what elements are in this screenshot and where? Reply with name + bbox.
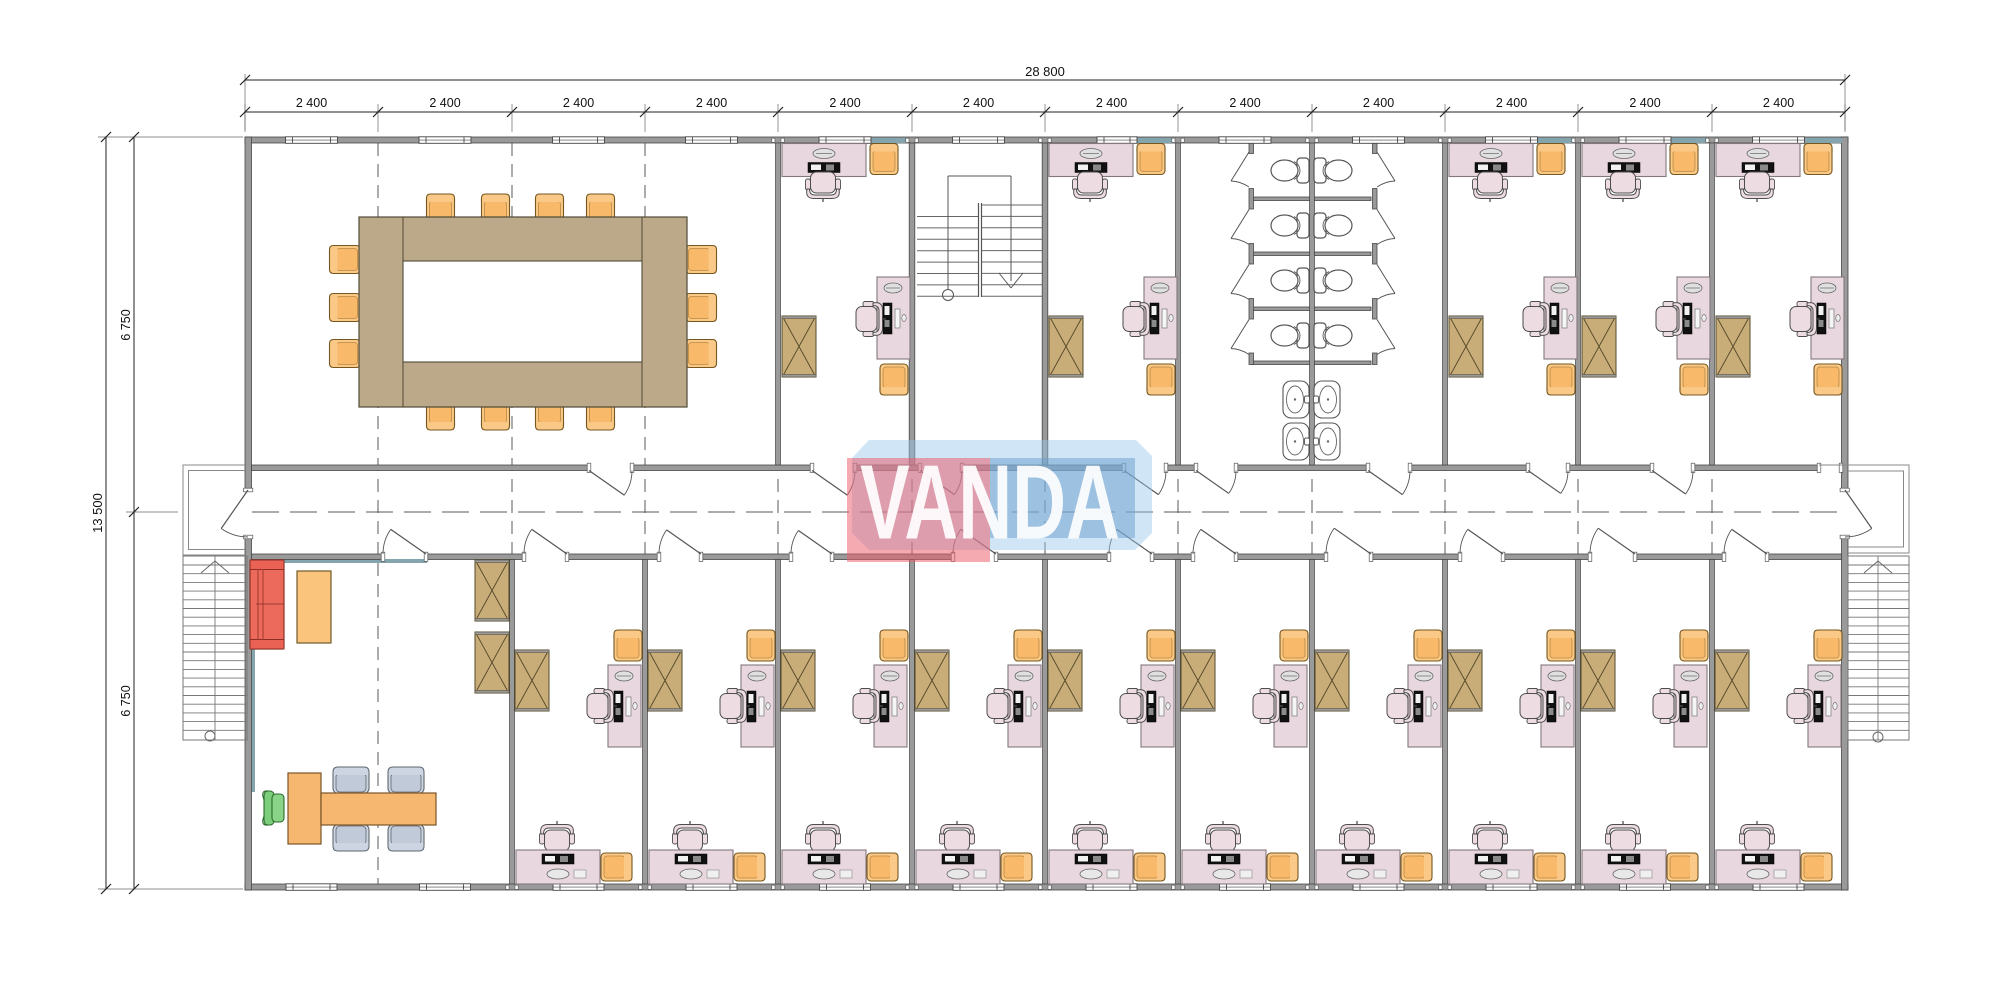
svg-text:2 400: 2 400 xyxy=(563,96,594,110)
svg-text:2 400: 2 400 xyxy=(429,96,460,110)
svg-text:2 400: 2 400 xyxy=(296,96,327,110)
svg-text:2 400: 2 400 xyxy=(1096,96,1127,110)
svg-text:13 500: 13 500 xyxy=(90,493,105,533)
svg-text:2 400: 2 400 xyxy=(1229,96,1260,110)
svg-text:2 400: 2 400 xyxy=(963,96,994,110)
svg-text:2 400: 2 400 xyxy=(1496,96,1527,110)
svg-text:6 750: 6 750 xyxy=(119,309,133,340)
svg-text:2 400: 2 400 xyxy=(1629,96,1660,110)
svg-text:2 400: 2 400 xyxy=(696,96,727,110)
svg-text:VANDA: VANDA xyxy=(860,444,1120,562)
svg-text:2 400: 2 400 xyxy=(1763,96,1794,110)
svg-text:2 400: 2 400 xyxy=(829,96,860,110)
svg-text:28 800: 28 800 xyxy=(1025,64,1065,79)
svg-text:2 400: 2 400 xyxy=(1363,96,1394,110)
svg-text:6 750: 6 750 xyxy=(119,685,133,716)
